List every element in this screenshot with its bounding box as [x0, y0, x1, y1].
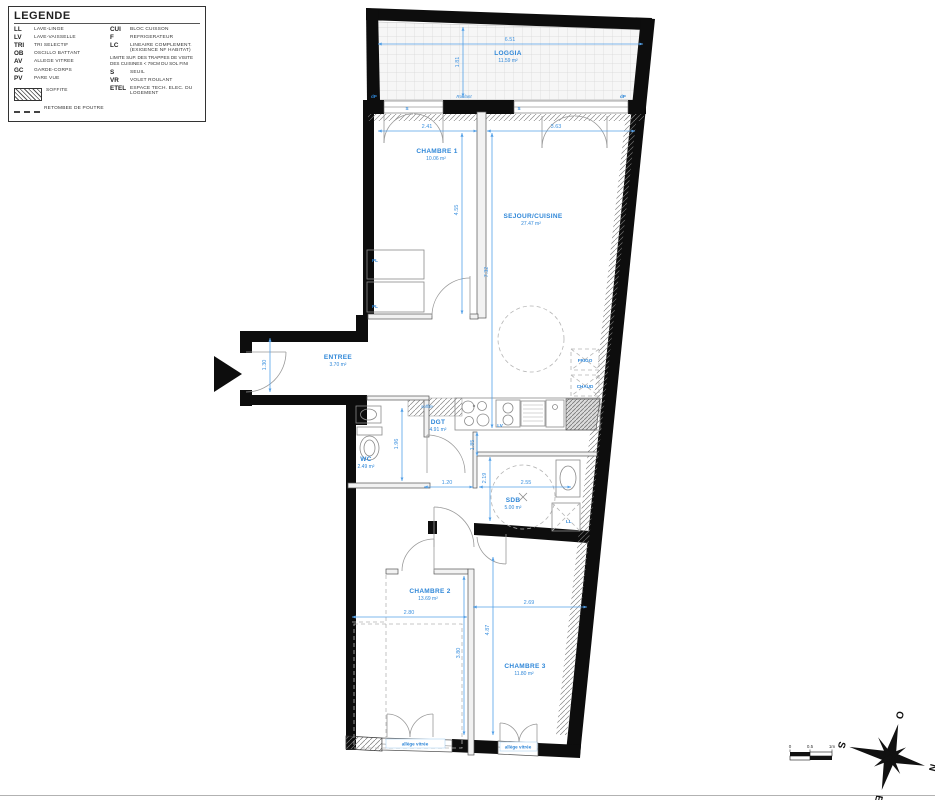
- downpipe-tag: dP: [620, 94, 626, 99]
- room-area-wc: 2.49 m²: [358, 464, 375, 470]
- floor-plan-sheet: LEGENDE LLLAVE-LINGE LVLAVE-VAISSELLE TR…: [0, 0, 935, 800]
- lave-linge-tag: LL: [566, 519, 572, 524]
- room-label-sejour: SEJOUR/CUISINE: [503, 213, 562, 220]
- walls-interior: [348, 112, 597, 755]
- allege-vitree-tag: allège vitrée: [505, 745, 532, 750]
- dim-sdb-height: 2.19: [482, 473, 488, 484]
- room-area-chambre2: 13.69 m²: [418, 596, 438, 602]
- room-label-entree: ENTREE: [324, 354, 353, 361]
- downpipe-tag: dP: [371, 94, 377, 99]
- dim-kitchen-width: 1.85: [470, 440, 476, 451]
- dim-chambre1-height: 4.55: [454, 205, 460, 216]
- dim-chambre1-width: 2.41: [422, 124, 433, 130]
- room-area-loggia: 11.59 m²: [498, 58, 518, 64]
- scale-half-label: 0.5: [807, 744, 814, 749]
- room-label-chambre1: CHAMBRE 1: [416, 148, 457, 155]
- dim-loggia-depth: 1.81: [455, 57, 461, 68]
- soffite-tag: soffite: [421, 404, 433, 409]
- room-area-chambre3: 11.80 m²: [514, 671, 534, 677]
- scale-zero-label: 0: [789, 744, 792, 749]
- room-area-sdb: 5.00 m²: [505, 505, 522, 511]
- placard-tag: PL: [372, 258, 378, 263]
- fixtures: [356, 306, 600, 531]
- dim-chambre3-height: 4.87: [485, 625, 491, 636]
- seuil-tag: S: [405, 106, 408, 111]
- dim-entree-height: 1.30: [262, 360, 268, 371]
- dim-sejour-width: 3.63: [551, 124, 562, 130]
- compass-east-label: E: [872, 794, 884, 800]
- dim-chambre2-height: 3.80: [456, 648, 462, 659]
- room-labels: LOGGIA 11.59 m² CHAMBRE 1 10.06 m² SEJOU…: [324, 50, 563, 677]
- frigo-tag: FRIGO: [578, 358, 593, 363]
- dashed-guides: [352, 575, 462, 748]
- room-label-wc: WC: [360, 456, 371, 463]
- dim-wc-height: 1.96: [394, 439, 400, 450]
- dim-chambre3-width: 2.69: [524, 600, 535, 606]
- compass-rose: N S E O: [824, 698, 935, 800]
- compass-south-label: S: [835, 740, 847, 749]
- room-label-sdb: SDB: [506, 497, 521, 504]
- compass-west-label: O: [893, 710, 906, 720]
- room-label-chambre2: CHAMBRE 2: [409, 588, 450, 595]
- doors: [246, 276, 506, 571]
- placard-tag: PL: [372, 304, 378, 309]
- room-area-chambre1: 10.06 m²: [426, 156, 446, 162]
- dim-hall-width: 1.20: [442, 480, 453, 486]
- seuil-tag: S: [517, 106, 520, 111]
- room-area-sejour: 27.47 m²: [521, 221, 541, 227]
- floor-plan: 6.51 1.81 2.41 3.63 4.55 7.32 1.30 1.96 …: [0, 0, 935, 800]
- scale-bar: 0 0.5 1m: [789, 744, 836, 760]
- room-area-entree: 3.70 m²: [330, 362, 347, 368]
- room-area-dgt: 4.91 m²: [430, 427, 447, 433]
- dim-loggia-width: 6.51: [505, 37, 516, 43]
- dim-sejour-height: 7.32: [484, 267, 490, 278]
- chaud-tag: CHAUD: [577, 384, 594, 389]
- scale-one-label: 1m: [829, 744, 836, 749]
- allege-vitree-tag: allège vitrée: [402, 742, 429, 747]
- lave-vaisselle-tag: LV: [497, 423, 503, 428]
- entrance-arrow: [214, 356, 242, 392]
- dim-chambre2-width: 2.80: [404, 610, 415, 616]
- room-label-dgt: DGT: [431, 419, 446, 426]
- room-label-loggia: LOGGIA: [494, 50, 521, 57]
- dim-sdb-width: 2.55: [521, 480, 532, 486]
- room-label-chambre3: CHAMBRE 3: [504, 663, 545, 670]
- volet-roulant-tag: Roulant: [456, 94, 472, 99]
- compass-north-label: N: [926, 763, 935, 773]
